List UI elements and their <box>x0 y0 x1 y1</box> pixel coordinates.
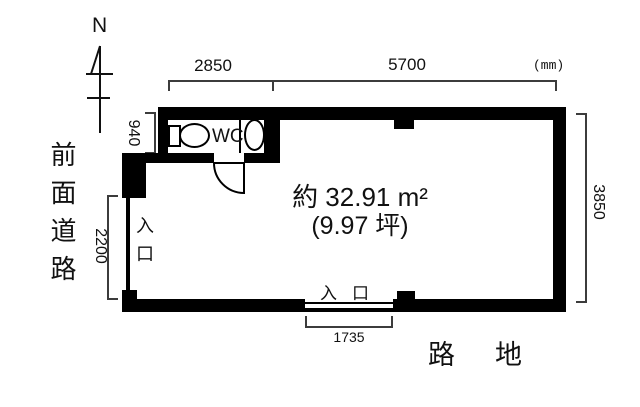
left-dim-tick-top <box>107 195 118 197</box>
top-dim-line <box>168 80 557 82</box>
wall-right <box>553 107 566 312</box>
wall-wc-right-block <box>266 107 280 163</box>
wall-left-step <box>122 160 146 198</box>
bottom-dim-tick-right <box>391 316 393 328</box>
washbasin-icon <box>244 119 265 151</box>
wall-top <box>158 107 566 120</box>
bottom-dim-line <box>305 326 393 328</box>
compass-needle-icon <box>82 40 118 140</box>
room-area-tsubo: (9.97 坪) <box>260 212 460 241</box>
floor-plan: N 前面道路 路地 2850 5700 (mm) 3850 940 2200 1… <box>0 0 640 407</box>
top-dim-tick-right <box>555 80 557 91</box>
door-swing-icon <box>208 159 252 201</box>
wc-dim-line <box>154 112 156 154</box>
dim-top-left: 2850 <box>170 56 256 76</box>
wc-dim-tick-top <box>145 112 156 114</box>
right-dim-tick-top <box>576 113 587 115</box>
bottom-dim-tick-left <box>305 316 307 328</box>
wall-corner-bottom-left <box>122 290 137 312</box>
right-dim-line <box>585 113 587 303</box>
right-dim-tick-bottom <box>576 301 587 303</box>
top-dim-tick-left <box>168 80 170 91</box>
left-entrance-line <box>126 198 130 290</box>
bottom-entrance-outer-line <box>305 308 393 312</box>
wc-label: WC <box>212 126 244 148</box>
alley-label: 路地 <box>428 333 562 372</box>
dim-top-right: 5700 <box>364 55 450 75</box>
pillar-top <box>394 120 414 129</box>
left-dim-tick-bottom <box>107 298 118 300</box>
unit-label: (mm) <box>533 58 564 73</box>
room-area-block: 約 32.91 m² (9.97 坪) <box>260 183 460 241</box>
dim-left-entrance: 2200 <box>91 221 109 271</box>
dim-bottom-entrance: 1735 <box>314 329 384 345</box>
dim-right-side: 3850 <box>589 177 607 227</box>
top-dim-tick-mid <box>272 80 274 91</box>
entrance-left-label: 入口 <box>131 216 157 272</box>
toilet-bowl-icon <box>179 123 210 148</box>
dim-wc-depth: 940 <box>124 113 142 153</box>
room-area-m2: 約 32.91 m² <box>260 183 460 212</box>
compass-north-label: N <box>92 14 107 38</box>
entrance-bottom-label: 入口 <box>320 279 384 304</box>
front-road-label: 前面道路 <box>44 141 81 293</box>
pillar-bottom <box>397 291 415 300</box>
